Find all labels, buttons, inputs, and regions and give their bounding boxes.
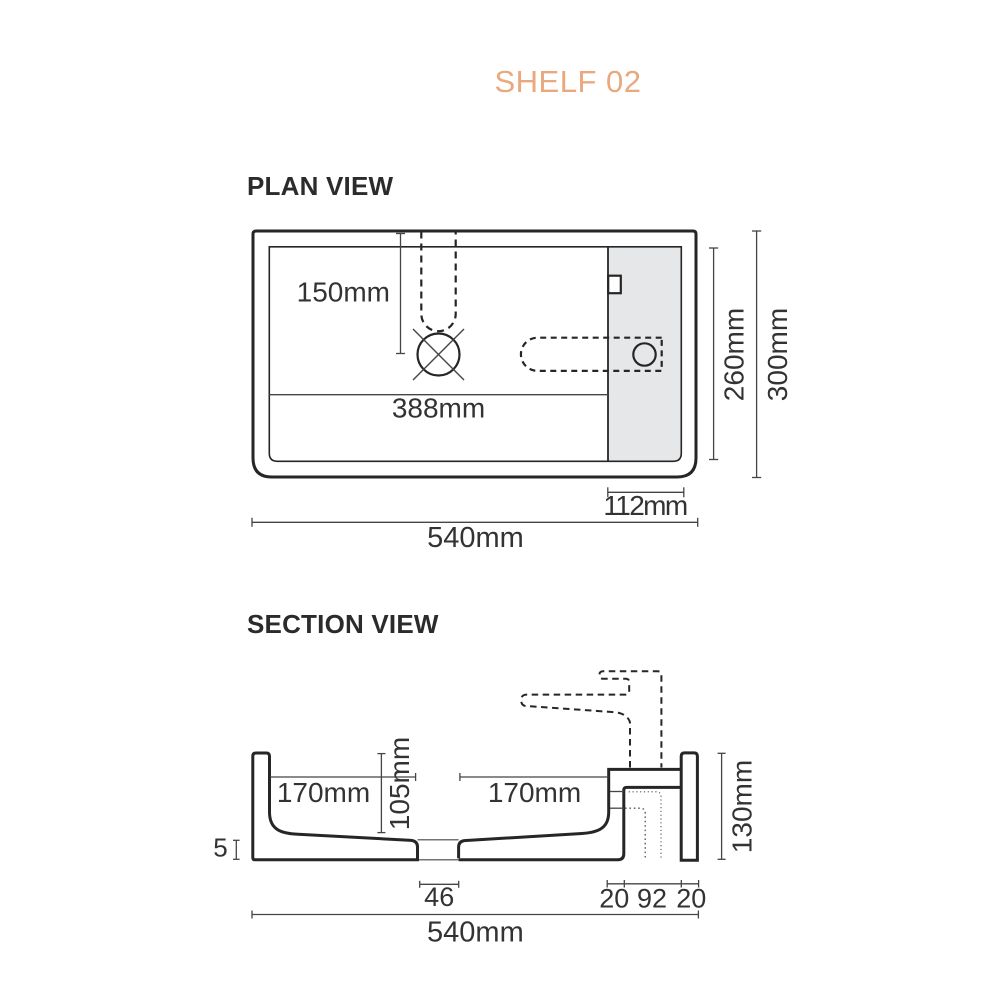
svg-text:540mm: 540mm <box>427 917 524 949</box>
svg-text:92: 92 <box>637 884 667 914</box>
svg-text:388mm: 388mm <box>392 393 485 424</box>
svg-text:130mm: 130mm <box>727 760 758 853</box>
svg-text:150mm: 150mm <box>297 277 390 308</box>
svg-text:SHELF 02: SHELF 02 <box>494 64 641 99</box>
svg-text:46: 46 <box>424 882 454 912</box>
svg-text:170mm: 170mm <box>277 777 370 808</box>
svg-text:5: 5 <box>213 833 227 863</box>
svg-text:SECTION VIEW: SECTION VIEW <box>247 609 439 639</box>
svg-text:260mm: 260mm <box>719 308 750 401</box>
svg-text:540mm: 540mm <box>427 522 524 554</box>
svg-text:PLAN VIEW: PLAN VIEW <box>247 171 394 201</box>
svg-text:105mm: 105mm <box>384 737 415 830</box>
svg-text:112mm: 112mm <box>603 490 687 521</box>
svg-text:300mm: 300mm <box>762 308 793 401</box>
svg-text:170mm: 170mm <box>488 777 581 808</box>
svg-text:20: 20 <box>599 884 629 914</box>
svg-text:20: 20 <box>676 884 706 914</box>
